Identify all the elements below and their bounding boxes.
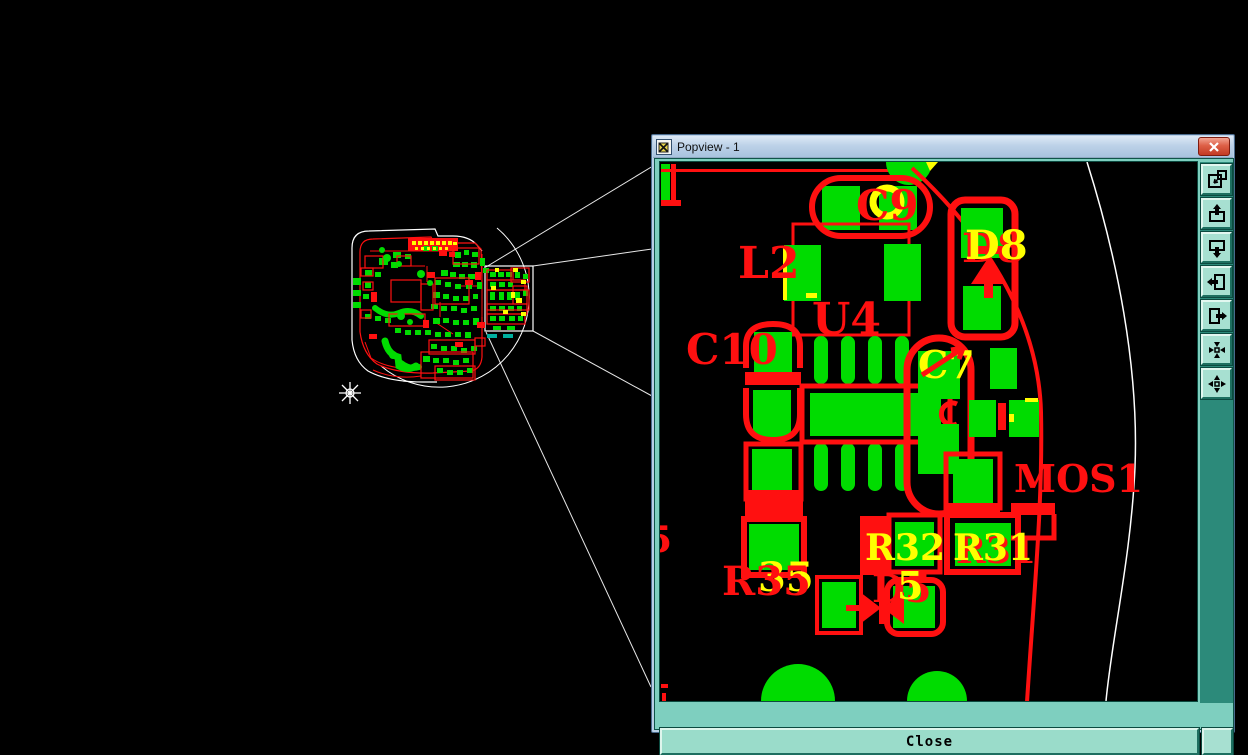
green-pad [463,296,469,301]
green-pad [353,302,361,308]
green-pad [453,360,459,365]
green-pad [480,258,485,266]
green-pad [441,270,448,276]
popview-window: Popview - 1 C9L2U4D8D8C10C7MOS1R32R31R31… [651,134,1235,733]
projection-line-bottom [486,332,651,687]
origin-star [339,382,361,404]
label-C10: C10 [686,325,778,374]
copper-dot [417,270,425,278]
green-pad [385,318,391,323]
yellow-pad [513,268,518,272]
yellow-pad [424,241,428,245]
green-pad [499,316,505,321]
green-pad [441,306,447,311]
projection-line-upper [533,249,652,266]
green-pad [463,358,469,363]
green-pad [453,320,459,325]
new-popview-button[interactable] [1201,164,1232,195]
label-D8: D8 [965,222,1028,269]
green-pad [447,370,453,375]
green-pad [431,344,437,349]
green-pad [509,316,515,321]
green-pad [433,318,440,324]
green-pad [443,294,449,299]
highlight-sliver [1009,414,1014,422]
arrow-up-box-icon [1206,203,1228,225]
green-pad [455,284,461,289]
red_fill-pad [427,272,435,278]
green-pad [443,358,449,363]
green-pad [433,292,440,298]
diode-stem [846,605,860,611]
red_fill-pad [439,250,447,256]
close-button[interactable]: Close [660,728,1199,755]
pan-down-button[interactable] [1201,232,1232,263]
yellow-pad [433,247,436,250]
green-pad [508,282,513,287]
pad-C10-3 [752,449,792,495]
yellow-pad [442,241,446,245]
popview-titlebar[interactable]: Popview - 1 [653,136,1233,158]
green-pad [353,278,361,285]
green-pad [437,368,443,373]
green-pad [471,262,477,268]
red_fill-pad [477,322,485,328]
pad-D8-2 [963,286,1001,330]
teal-pad [503,334,513,338]
popview-frame: C9L2U4D8D8C10C7MOS1R32R31R3135R35D555 [654,158,1234,730]
copper-dot [407,319,413,325]
arrow-down-box-icon [1206,237,1228,259]
highlight-sliver [1025,398,1038,402]
yellow-pad [418,241,422,245]
pad [990,348,1017,389]
copper-dot [397,312,405,320]
pan-left-button[interactable] [1201,266,1232,297]
green-pad [523,274,528,279]
green-pad [450,272,456,277]
ic-pin [868,443,882,491]
yellow-pad [516,298,522,303]
label-MOS1: MOS1 [1014,456,1143,501]
yellow-pad [439,247,442,250]
ic-pin [841,443,855,491]
red_fill-pad [449,252,455,257]
pad [953,459,993,503]
yellow-pad [430,241,434,245]
arrows-outward-icon [1206,373,1228,395]
popview-window-icon [656,139,672,155]
green-pad [423,356,430,362]
copper-dot [383,254,391,262]
green-pad [477,282,482,289]
yellow-pad [436,241,440,245]
red_outline-pad [391,280,421,302]
green-pad [507,326,515,330]
yellow-pad [521,312,526,316]
arrow-right-box-icon [1206,305,1228,327]
green-pad [457,370,463,375]
label-D5-highlight: 5 [897,563,923,608]
pad [969,400,996,437]
arrows-inward-icon [1206,339,1228,361]
close-button-bar: Close [660,728,1199,755]
green-pad [435,332,441,337]
ic-pin [841,336,855,384]
red_fill-pad [369,334,377,339]
yellow-pad [511,292,515,298]
popview-canvas[interactable]: C9L2U4D8D8C10C7MOS1R32R31R3135R35D555 [660,162,1197,701]
arrow-left-box-icon [1206,271,1228,293]
yellow-pad [453,242,457,245]
pan-up-button[interactable] [1201,198,1232,229]
green-pad [455,252,461,258]
green-pad [405,330,411,335]
ic-pin [868,336,882,384]
projection-line-lower [533,331,652,396]
green-pad [498,272,504,277]
yellow-pad [521,280,526,284]
green-pad [464,250,469,255]
pad-U4-2 [884,244,921,301]
green-pad [499,292,504,300]
board-overview [352,228,533,387]
label-R35: R35 [722,558,811,605]
ic-pin [814,336,828,384]
green-pad [395,328,401,333]
label-R31: R31 [953,527,1033,569]
yellow-pad [415,247,418,250]
green-pad [415,330,421,335]
green-pad [472,252,478,257]
window-copy-icon [1206,169,1228,191]
yellow-pad [427,247,430,250]
silk-line-top [661,169,911,172]
green-pad [490,272,496,277]
yellow-pad [412,241,416,245]
green-pad [353,290,361,296]
diode-stem [984,284,993,298]
green-pad [518,316,523,321]
green-pad [363,294,369,299]
silk-bar [998,403,1006,430]
copper-dot [396,261,402,267]
green-pad [431,304,438,309]
zoom-out-button[interactable] [1201,368,1232,399]
green-pad [490,316,496,321]
zoom-in-button[interactable] [1201,334,1232,365]
green-pad [455,332,461,337]
green-pad [365,270,372,276]
label-L2: L2 [738,238,800,289]
pan-right-button[interactable] [1201,300,1232,331]
green-pad [451,306,457,311]
red_fill-pad [371,292,377,302]
yellow-pad [503,310,508,314]
green-pad [425,330,431,335]
label-C7: C7 [918,342,975,387]
pad-dome-bottom [761,664,835,701]
green-pad [471,346,477,351]
popview-toolbar [1200,162,1233,703]
green-pad [467,368,473,373]
green-pad [433,358,439,363]
green-pad [375,316,381,321]
popview-pcb-view: C9L2U4D8D8C10C7MOS1R32R31R3135R35D555 [660,162,1197,701]
red_fill-pad [423,320,429,328]
red_fill-pad [455,342,463,347]
toolbar-end-cap [1202,728,1233,755]
yellow-pad [448,241,452,245]
green-pad [493,326,501,330]
copper-dot [389,351,397,359]
ic-pin [814,443,828,491]
yellow-pad [445,247,448,250]
green-pad [443,318,449,323]
pad-C10-2 [753,390,791,437]
close-window-button[interactable] [1198,137,1230,156]
green-pad [515,272,520,278]
copper-dot [427,280,433,286]
yellow-pad [495,268,499,272]
green-pad [445,332,451,337]
yellow-pad [421,247,424,250]
green-pad [499,282,505,287]
green-pad [375,272,381,277]
red_fill-pad [465,280,473,285]
projection-line-top [486,166,653,267]
corner-silk [661,200,681,206]
close-icon [1208,142,1220,152]
green-pad [465,332,471,338]
green-pad [445,282,451,287]
pad-C7-2 [918,424,959,474]
silk-tick [661,684,668,688]
green-pad [365,282,371,288]
yellow-pad [491,286,496,290]
pad-dome-bottom [907,671,967,701]
green-pad [463,320,469,325]
label-partial: 5 [660,519,672,561]
green-pad [441,346,447,351]
green-pad [473,294,478,299]
copper-dot [379,247,385,253]
teal-pad [487,334,497,338]
silk-tick [662,693,666,701]
red_outline-pad [475,338,485,346]
popview-title: Popview - 1 [677,140,1198,154]
green-pad [461,308,467,313]
silk-bar [745,490,803,520]
board-outline-arc [1087,162,1135,701]
red_fill-pad [475,272,481,280]
green-pad [453,296,459,301]
green-pad [435,280,441,285]
green-pad [490,292,495,300]
green-pad [471,306,477,311]
